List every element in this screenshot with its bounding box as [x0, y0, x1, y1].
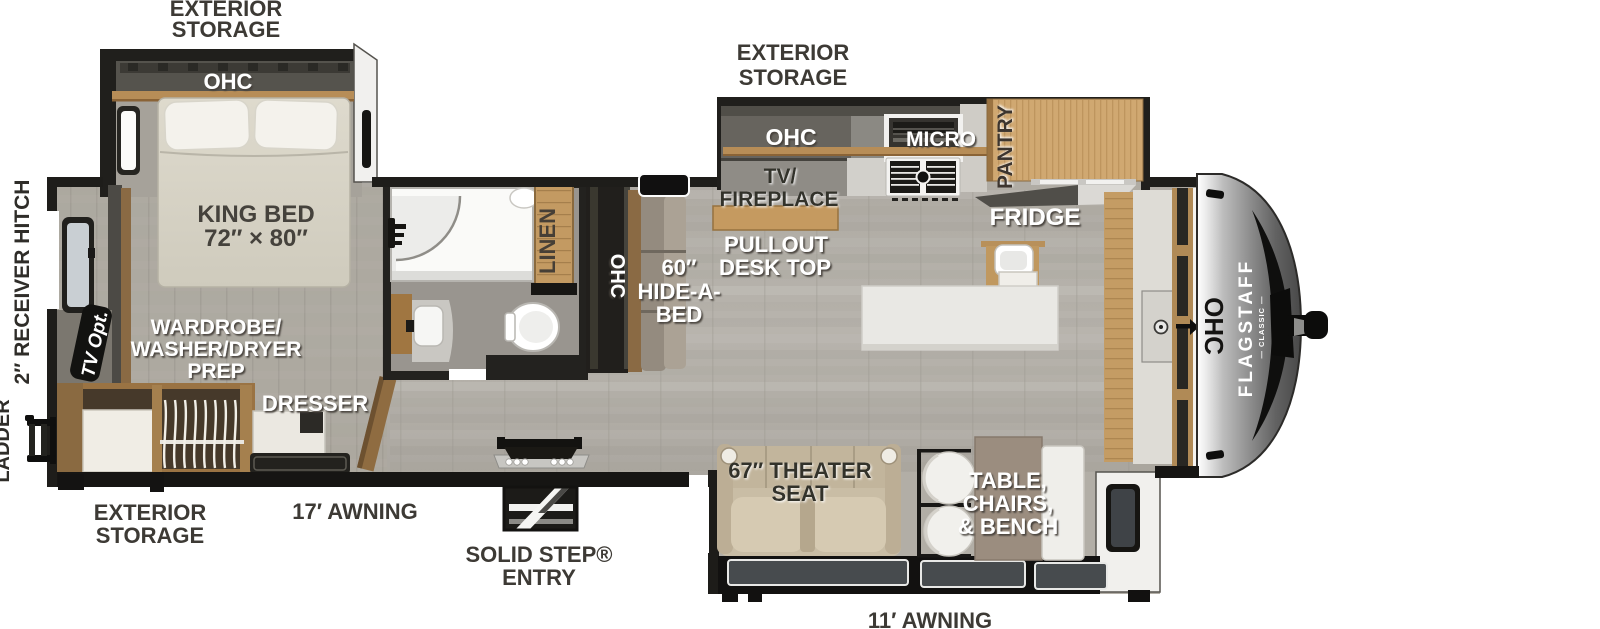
svg-text:PANTRY: PANTRY	[994, 105, 1017, 189]
svg-text:67″ THEATER: 67″ THEATER	[728, 458, 871, 483]
svg-text:SOLID STEP®: SOLID STEP®	[465, 542, 612, 567]
svg-text:LADDER: LADDER	[0, 399, 14, 483]
svg-text:FIREPLACE: FIREPLACE	[719, 188, 838, 211]
svg-text:DESK TOP: DESK TOP	[719, 255, 831, 280]
svg-text:EXTERIOR: EXTERIOR	[737, 40, 850, 65]
svg-text:OHC: OHC	[606, 254, 628, 298]
svg-text:72″ × 80″: 72″ × 80″	[204, 225, 308, 252]
svg-text:HIDE-A-: HIDE-A-	[637, 279, 720, 304]
svg-text:FRIDGE: FRIDGE	[990, 204, 1081, 231]
svg-text:FLAGSTAFF: FLAGSTAFF	[1236, 259, 1257, 398]
svg-text:DRESSER: DRESSER	[262, 391, 368, 416]
svg-text:TV/: TV/	[764, 165, 797, 188]
svg-text:CHAIRS,: CHAIRS,	[963, 491, 1053, 516]
svg-text:OHC: OHC	[765, 124, 816, 150]
svg-text:BED: BED	[656, 302, 702, 327]
svg-text:WASHER/DRYER: WASHER/DRYER	[131, 338, 302, 361]
svg-text:60″: 60″	[661, 255, 696, 280]
svg-text:11′ AWNING: 11′ AWNING	[868, 608, 992, 629]
svg-text:OHC: OHC	[1199, 297, 1229, 355]
svg-text:STORAGE: STORAGE	[739, 65, 847, 90]
svg-text:EXTERIOR: EXTERIOR	[94, 500, 207, 525]
svg-text:— CLASSIC —: — CLASSIC —	[1257, 295, 1266, 358]
svg-text:TABLE,: TABLE,	[969, 468, 1047, 493]
svg-text:STORAGE: STORAGE	[96, 523, 204, 548]
svg-text:LINEN: LINEN	[535, 208, 560, 274]
svg-text:& BENCH: & BENCH	[958, 514, 1058, 539]
svg-text:OHC: OHC	[204, 69, 253, 94]
svg-text:STORAGE: STORAGE	[172, 17, 280, 42]
svg-text:17′ AWNING: 17′ AWNING	[292, 499, 417, 524]
svg-text:2″ RECEIVER HITCH: 2″ RECEIVER HITCH	[11, 180, 34, 385]
svg-text:SEAT: SEAT	[771, 481, 829, 506]
svg-text:PULLOUT: PULLOUT	[724, 232, 828, 257]
svg-text:ENTRY: ENTRY	[502, 565, 576, 590]
svg-text:MICRO: MICRO	[906, 128, 976, 151]
svg-text:WARDROBE/: WARDROBE/	[151, 316, 282, 339]
svg-text:KING BED: KING BED	[197, 201, 314, 228]
svg-text:PREP: PREP	[187, 360, 244, 383]
